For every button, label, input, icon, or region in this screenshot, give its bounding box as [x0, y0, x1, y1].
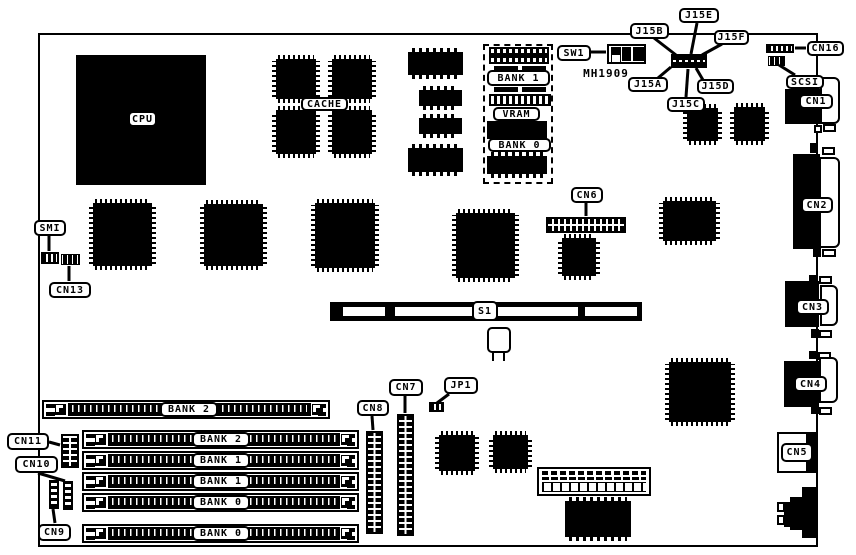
cn2-tab-top	[822, 147, 835, 155]
cn4-mount-top	[809, 351, 817, 359]
cn4-tab-bottom	[819, 407, 832, 415]
vram-module-2	[487, 152, 547, 178]
ic-chip-bottom-2	[489, 431, 532, 473]
ic-chip-mid-3	[311, 199, 379, 272]
j15d-label: J15D	[697, 79, 734, 94]
simm-latch-left	[86, 454, 107, 467]
simm-latch-right	[312, 403, 326, 416]
cn7-pin-header	[397, 414, 414, 536]
jp1-jumper	[429, 402, 444, 412]
simm-latch-right	[341, 527, 355, 540]
cn10-label: CN10	[15, 456, 58, 473]
cn13-label: CN13	[49, 282, 91, 298]
simm-latch-right	[341, 433, 355, 446]
cn6-pin-header	[546, 217, 626, 233]
cn9-label: CN9	[38, 524, 71, 541]
sw1-label: SW1	[557, 45, 591, 61]
j15a-label: J15A	[628, 77, 668, 92]
cn1-tab-1	[814, 125, 822, 133]
cn3-mount-bottom	[811, 329, 819, 338]
cn11-label: CN11	[7, 433, 49, 450]
cn8-label: CN8	[357, 400, 389, 416]
cn2-mount-bottom	[813, 248, 821, 257]
cn5-label: CN5	[781, 443, 813, 462]
ic-chip-top-2	[730, 103, 769, 145]
cn6-label: CN6	[571, 187, 603, 203]
motherboard-diagram: CPU CACHE BANK 1 VRAM BANK 0 SW1 MH1909 …	[0, 0, 856, 555]
cn9-connector	[49, 480, 59, 509]
scsi-terminator	[768, 56, 785, 66]
power-connector-cells	[542, 482, 646, 492]
crystal-leg-2	[503, 353, 505, 361]
simm-latch-right	[341, 496, 355, 509]
cn2-label: CN2	[801, 197, 833, 213]
cache-chip-2	[328, 55, 376, 103]
ic-chip-bottom-3	[565, 497, 631, 541]
simm-bank1-b-label: BANK 1	[192, 474, 250, 489]
cache-chip-4	[328, 106, 376, 158]
cn11-pin-header	[61, 434, 79, 468]
s1-slot-window-2	[395, 307, 473, 316]
s1-label: S1	[472, 301, 498, 321]
simm-latch-left	[86, 433, 107, 446]
simm-latch-left	[86, 475, 107, 488]
s1-slot-window-3	[498, 307, 578, 316]
din-connector-nub	[784, 502, 791, 527]
ic-chip-mid-1	[89, 199, 156, 270]
dip-chip-3	[419, 114, 462, 138]
cache-chip-3	[272, 106, 320, 158]
j15f-label: J15F	[714, 30, 749, 45]
crystal-oscillator	[487, 327, 511, 353]
vram-socket-2	[489, 94, 551, 106]
simm-latch-right	[341, 475, 355, 488]
j15b-label: J15B	[630, 23, 669, 39]
cn10-connector	[63, 481, 73, 510]
vram-module-bar-4	[522, 87, 546, 92]
simm-bank2-label: BANK 2	[192, 432, 250, 447]
ic-chip-mid-4	[452, 209, 519, 282]
din-tab-2	[777, 515, 785, 525]
cn16-label: CN16	[807, 41, 844, 56]
dip-chip-2	[419, 86, 462, 110]
simm-bank1-a-label: BANK 1	[192, 453, 250, 468]
cache-label: CACHE	[301, 97, 348, 111]
crystal-leg-1	[492, 353, 494, 361]
j15-jumper-block-dashes	[673, 60, 705, 62]
cn4-mount-bottom	[811, 406, 819, 414]
scsi-label: SCSI	[786, 75, 824, 89]
vram-module-bar-3	[494, 87, 518, 92]
dip-chip-1	[408, 48, 463, 79]
j15e-label: J15E	[679, 8, 719, 23]
smi-jumper	[41, 252, 59, 264]
simm-latch-left	[86, 496, 107, 509]
jp1-label: JP1	[444, 377, 478, 394]
sw1-switch-1	[611, 47, 621, 63]
cn3-label: CN3	[796, 299, 829, 315]
simm-latch-left	[46, 403, 67, 416]
vram-socket-1	[489, 47, 549, 64]
cn7-label: CN7	[389, 379, 423, 396]
cn8-pin-header	[366, 431, 383, 534]
dip-chip-4	[408, 144, 463, 176]
sw1-part-number: MH1909	[581, 66, 631, 80]
cpu-label: CPU	[128, 111, 157, 127]
cn4-label: CN4	[794, 376, 827, 392]
din-connector-step	[802, 487, 818, 538]
vram-module-1	[487, 121, 547, 139]
cn1-tab-2	[823, 124, 836, 132]
ic-chip-mid-6	[659, 197, 720, 245]
smi-label: SMI	[34, 220, 66, 236]
simm-latch-left	[86, 527, 107, 540]
simm-bank2-top-label: BANK 2	[160, 402, 218, 417]
ic-chip-mid-5	[558, 234, 600, 280]
cn1-label: CN1	[799, 94, 833, 109]
sw1-switch-3	[633, 47, 644, 61]
vram-bank0-label: BANK 0	[488, 138, 551, 152]
cn2-tab-bottom	[822, 249, 836, 257]
s1-slot-window-1	[343, 307, 385, 316]
simm-bank0-bottom-label: BANK 0	[192, 526, 250, 541]
cn16-connector	[766, 44, 794, 53]
cn3-tab-bottom	[819, 330, 832, 338]
ic-chip-bottom-1	[435, 431, 479, 475]
vram-label: VRAM	[493, 107, 540, 121]
cn13-connector	[61, 254, 80, 265]
simm-bank0-a-label: BANK 0	[192, 495, 250, 510]
ic-chip-bottom-right	[665, 358, 735, 426]
din-tab-1	[777, 502, 785, 512]
s1-slot-window-4	[585, 307, 637, 316]
simm-latch-right	[341, 454, 355, 467]
cache-chip-1	[272, 55, 320, 103]
cn2-mount-top	[810, 143, 818, 153]
power-connector	[537, 467, 651, 496]
ic-chip-mid-2	[200, 200, 267, 270]
cn3-tab-top	[819, 276, 832, 284]
j15c-label: J15C	[667, 97, 705, 112]
sw1-switch-2	[622, 47, 631, 61]
vram-bank1-label: BANK 1	[487, 70, 550, 86]
